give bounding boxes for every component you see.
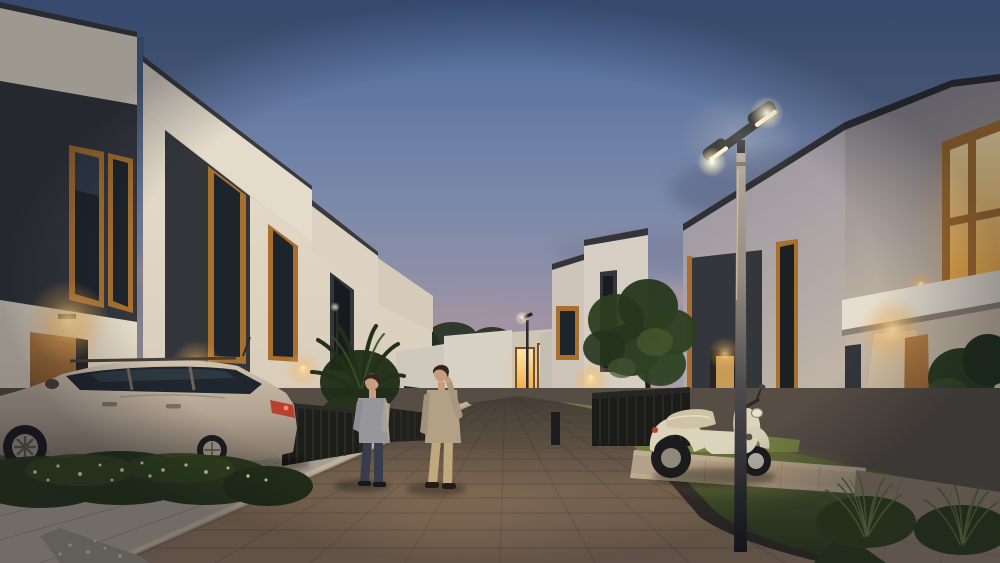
vignette-overlay — [0, 0, 1000, 563]
dusk-street-render — [0, 0, 1000, 563]
